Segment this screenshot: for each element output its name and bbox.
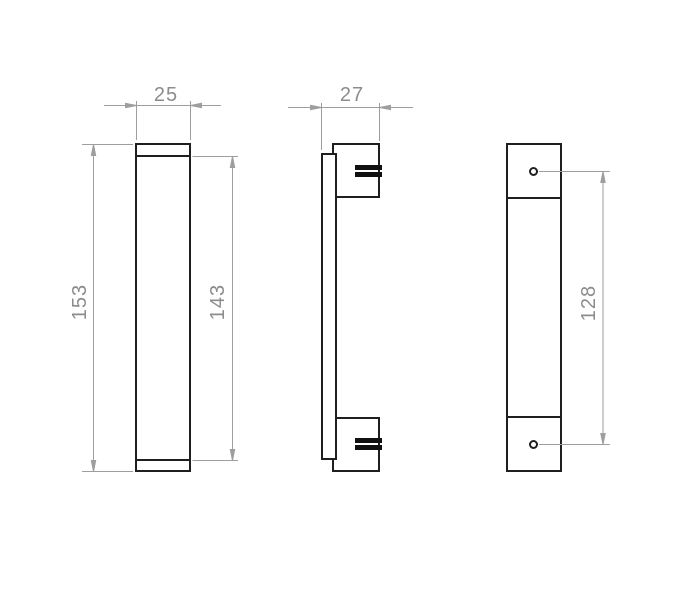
dim-label-front-width: 25 (154, 85, 178, 105)
back-view-body-outline (506, 143, 562, 472)
dim-label-hole-spacing: 128 (579, 285, 599, 321)
dim-153-arrow-bottom-icon (91, 461, 95, 472)
dim-25-arrow-right-icon (191, 103, 202, 107)
dim-143-arrow-bottom-icon (230, 450, 234, 461)
front-view-bottom-cap-line (137, 459, 189, 461)
technical-drawing-canvas: 25 27 153 143 128 (0, 0, 700, 592)
back-view-top-hole (529, 167, 538, 176)
dim-153-arrow-top-icon (91, 145, 95, 156)
side-view-bottom-pin-line-upper (355, 438, 382, 443)
dim-27-arrow-left-icon (311, 105, 322, 109)
dim-label-side-depth: 27 (340, 85, 364, 105)
dim-25-arrow-left-icon (126, 103, 137, 107)
front-view-top-cap-line (137, 155, 189, 157)
dim-128-arrow-bottom-icon (601, 434, 605, 445)
dim-label-grip-height: 143 (208, 284, 228, 320)
back-view-bottom-hole (529, 440, 538, 449)
dim-25-graphics (104, 101, 221, 140)
side-view-top-foot-outline (332, 143, 380, 198)
dim-label-overall-height: 153 (70, 284, 90, 320)
front-view-body-outline (135, 143, 191, 472)
dim-27-arrow-right-icon (380, 105, 391, 109)
side-view-bottom-pin-line-lower (355, 445, 382, 450)
side-view-top-pin-line-upper (355, 165, 382, 170)
dim-128-arrow-top-icon (601, 172, 605, 183)
back-view-bottom-divider-line (508, 416, 560, 418)
side-view-grip-bar-outline (321, 153, 337, 460)
back-view-top-divider-line (508, 197, 560, 199)
dim-143-arrow-top-icon (230, 157, 234, 168)
side-view-top-pin-line-lower (355, 172, 382, 177)
